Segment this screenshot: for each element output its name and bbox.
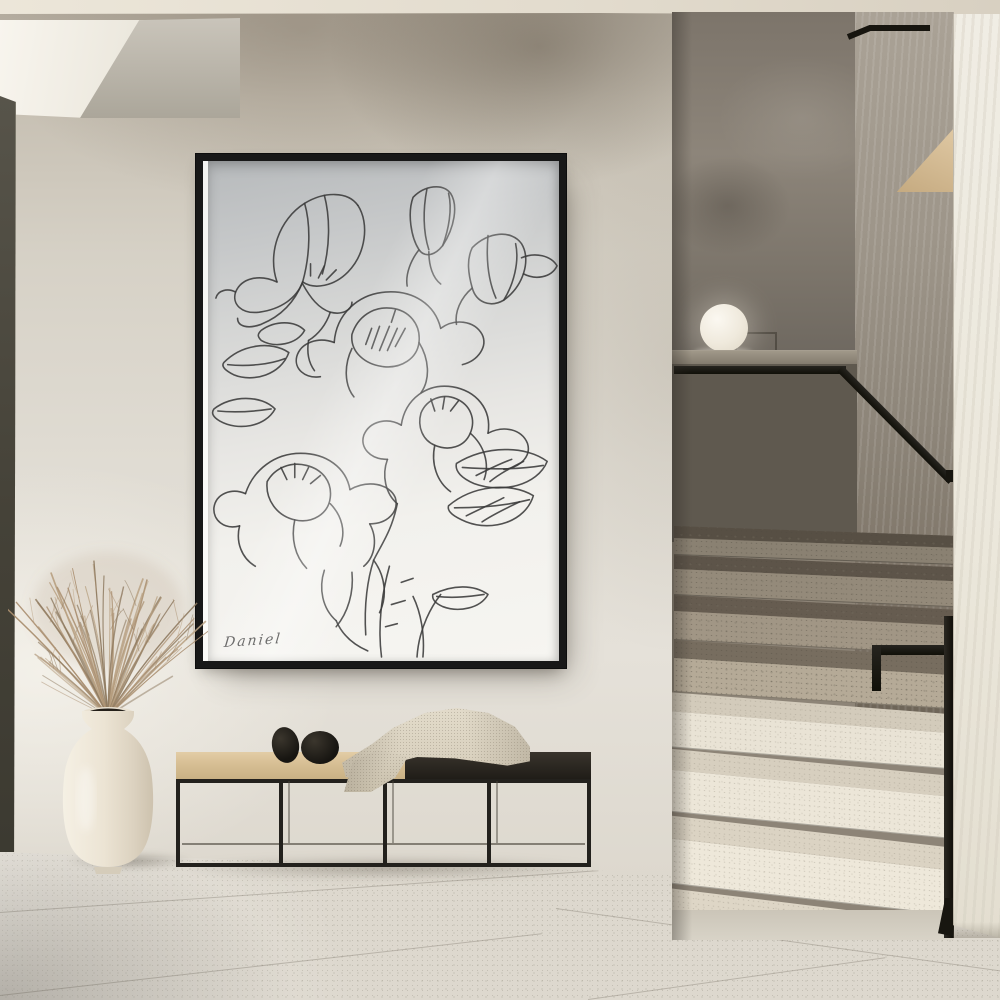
sphere-lamp xyxy=(700,304,748,352)
lower-handrail xyxy=(872,645,946,655)
niche-corner-shade xyxy=(672,12,692,940)
bench-back-leg xyxy=(392,781,394,843)
handrail-wall-mount xyxy=(946,470,954,482)
art-paper: Daniel xyxy=(203,161,559,661)
bench-leg xyxy=(383,779,387,867)
staircase-niche xyxy=(672,12,954,940)
bench-back-leg xyxy=(288,781,290,843)
stair-back-wall xyxy=(672,12,857,364)
upper-handrail-bracket xyxy=(840,16,940,42)
newel-post xyxy=(944,616,954,938)
bench-leg xyxy=(279,779,283,867)
lower-handrail-stub xyxy=(872,645,881,691)
right-wall-column xyxy=(953,14,1000,938)
handrail-horizontal xyxy=(674,366,846,374)
paper-light-band xyxy=(208,161,559,661)
ceramic-vase xyxy=(58,704,158,874)
picture-frame: Daniel xyxy=(195,153,567,669)
parapet-ledge xyxy=(672,350,857,364)
stair-landing-floor xyxy=(672,910,954,940)
right-wall-base-shadow xyxy=(953,922,1000,938)
bench-leg xyxy=(487,779,491,867)
parapet-wall xyxy=(672,364,857,542)
hallway-scene: Daniel xyxy=(0,0,1000,1000)
decor-pebble xyxy=(301,731,339,764)
bench-back-leg xyxy=(496,781,498,843)
